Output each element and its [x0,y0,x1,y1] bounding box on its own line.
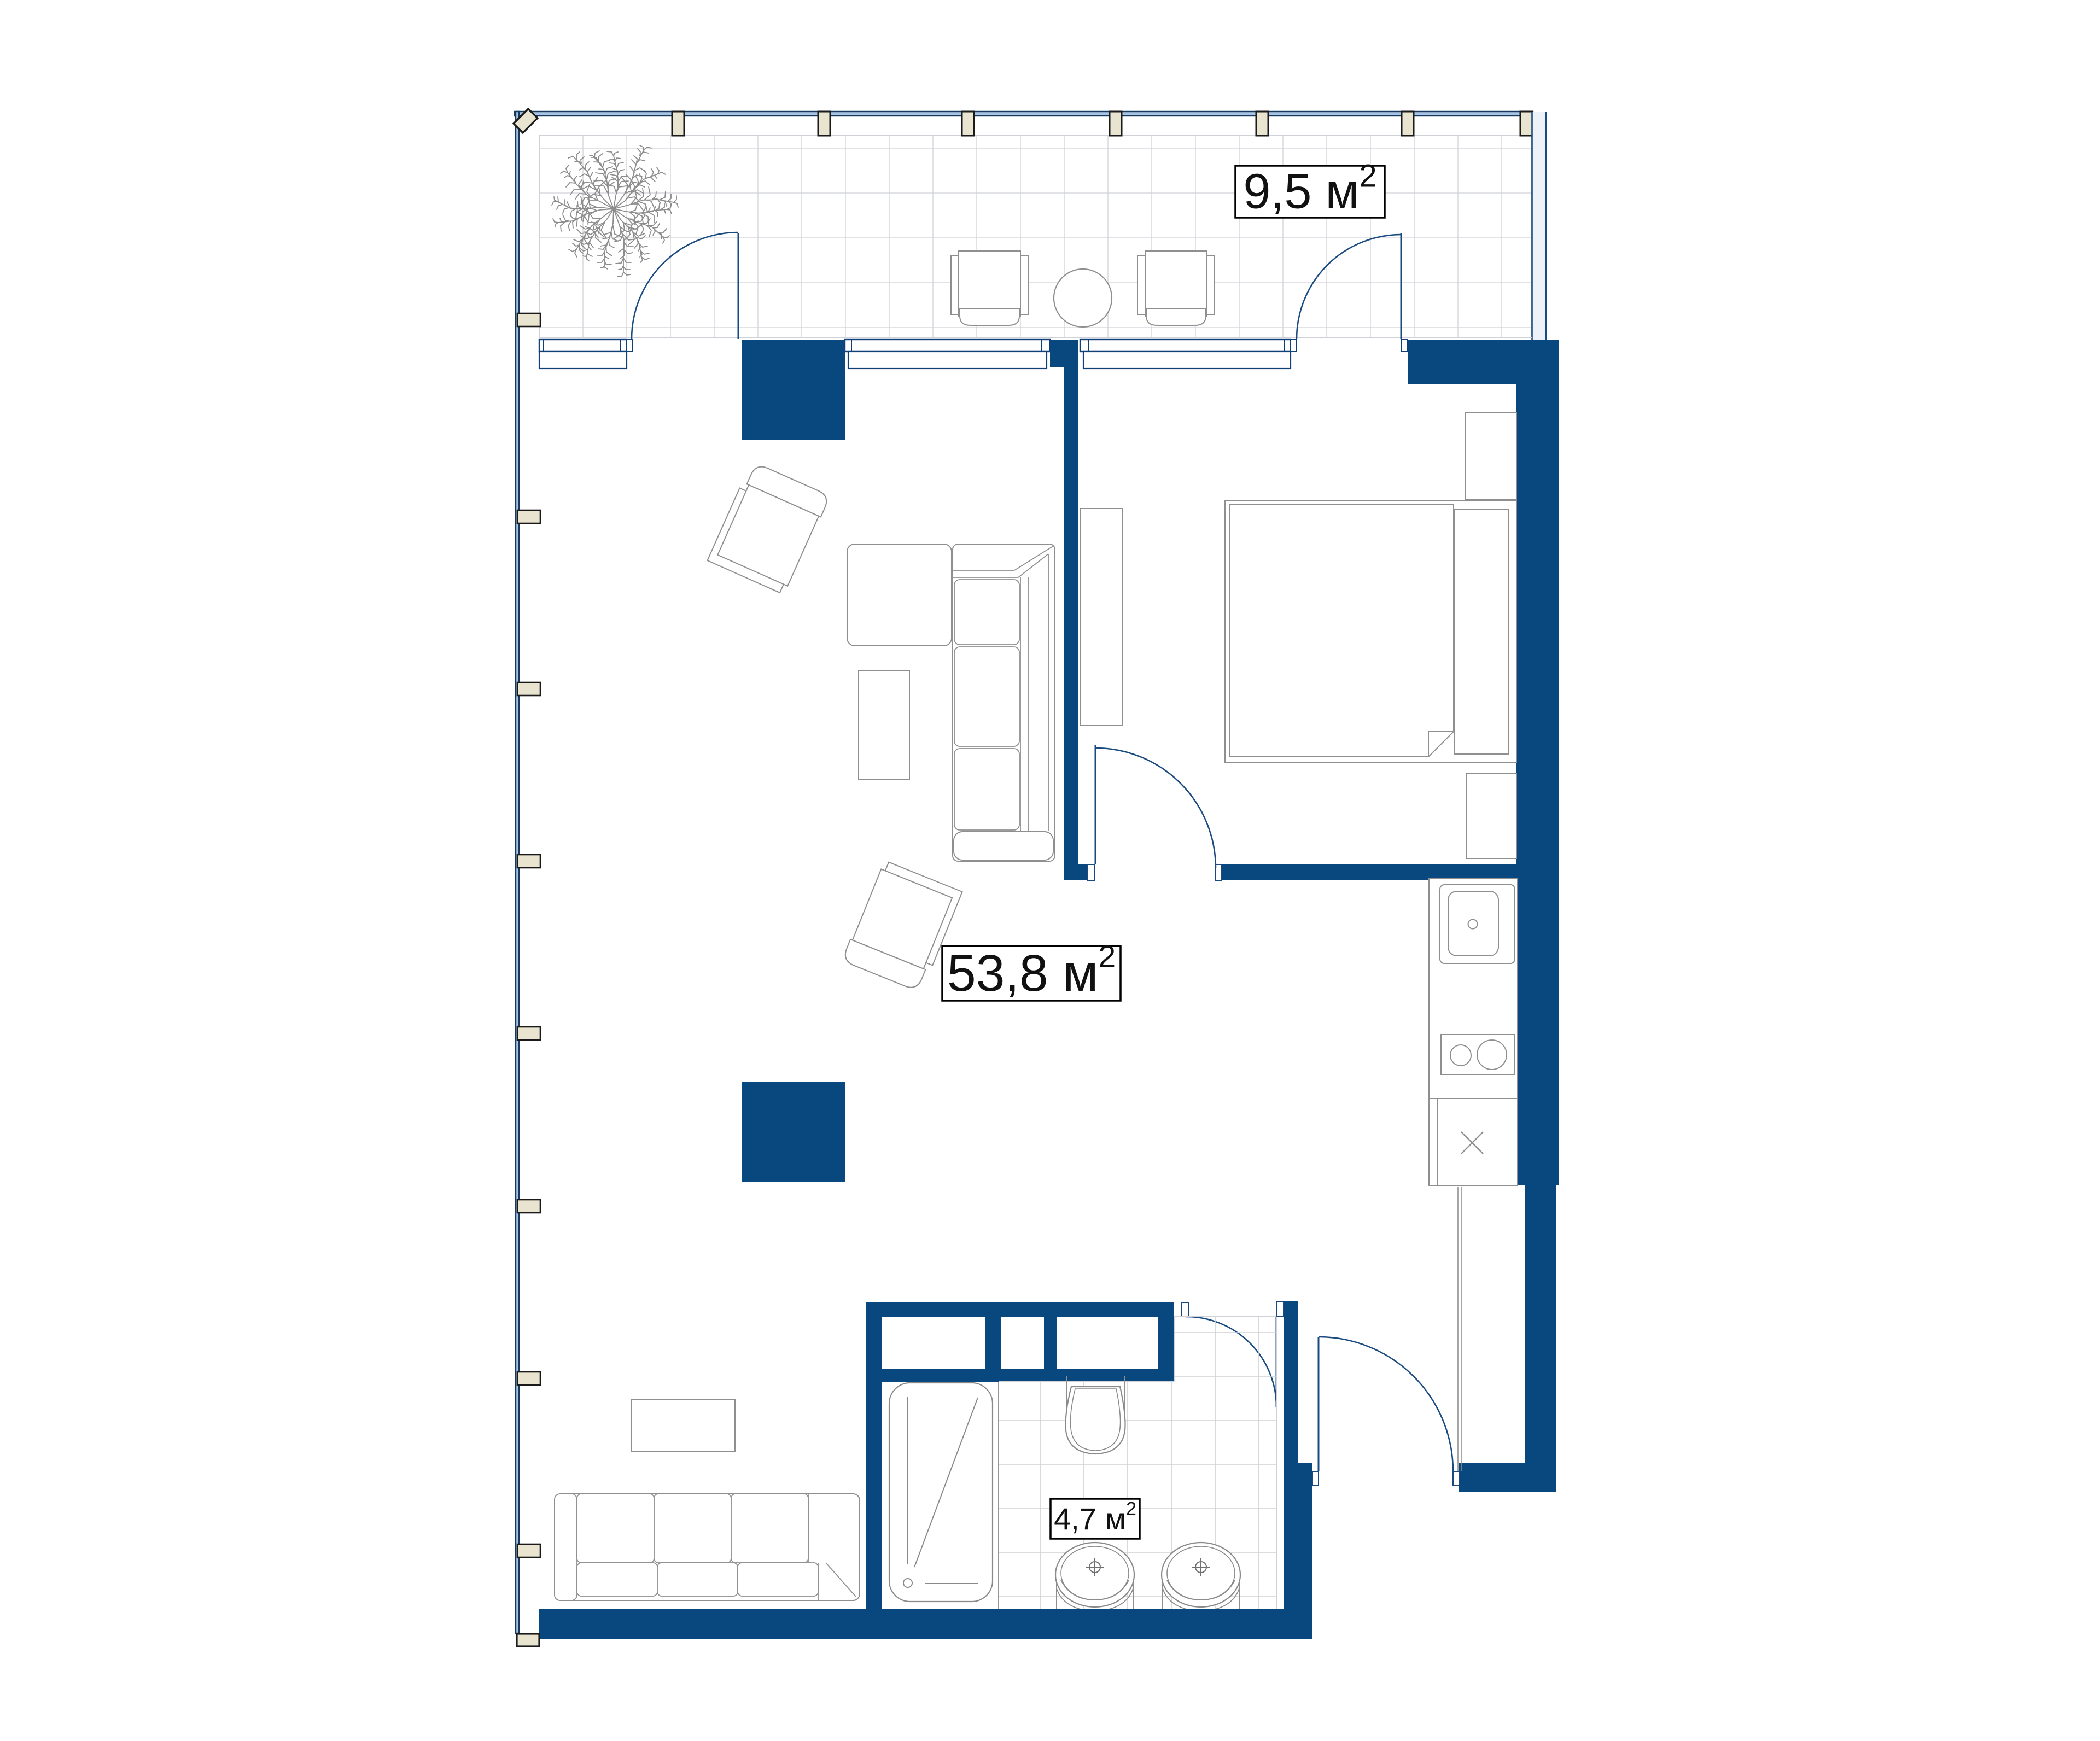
svg-text:53,8 м2: 53,8 м2 [947,939,1116,1002]
svg-text:9,5 м2: 9,5 м2 [1243,158,1376,219]
svg-text:4,7 м2: 4,7 м2 [1054,1499,1136,1536]
